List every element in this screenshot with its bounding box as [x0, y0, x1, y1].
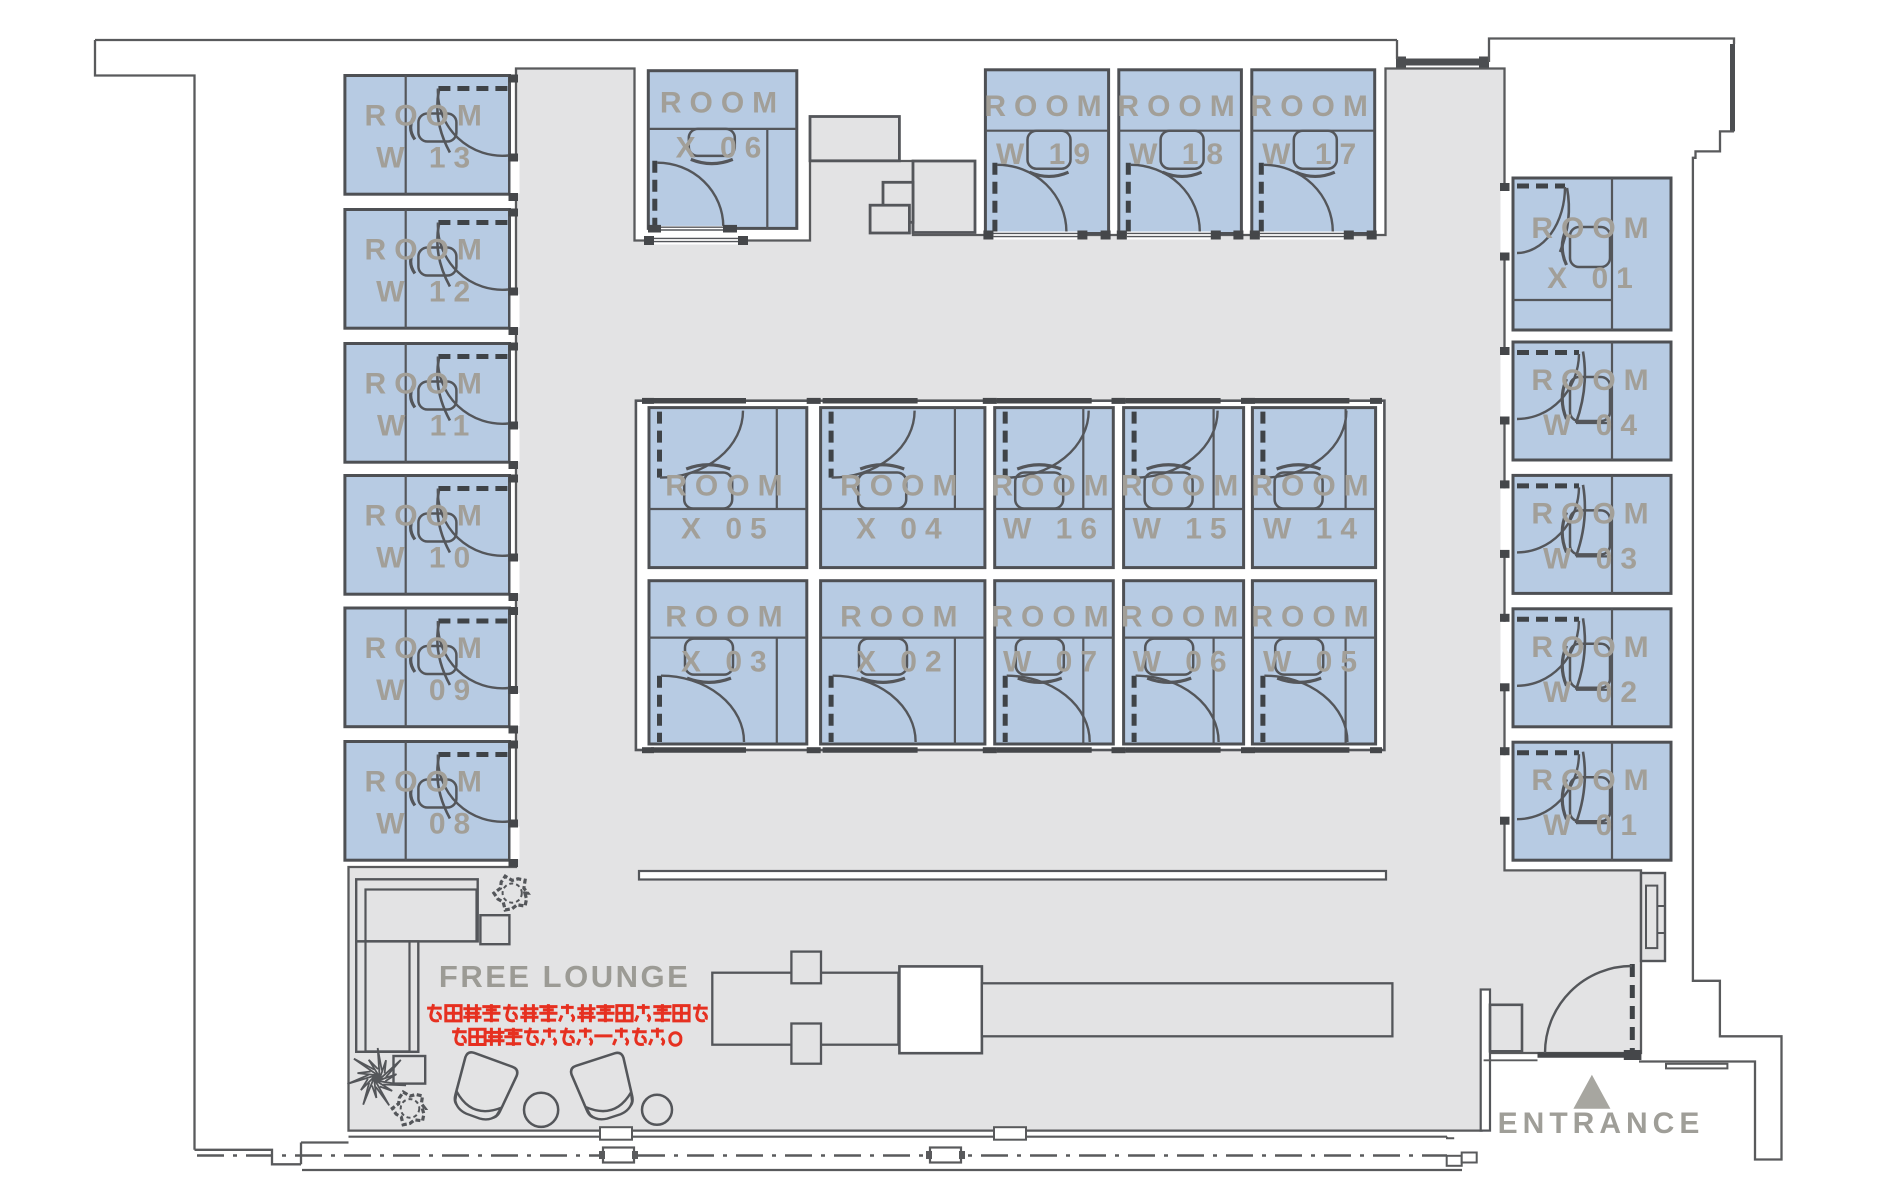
svg-text:ROOM: ROOM [1121, 601, 1246, 634]
svg-text:ROOM: ROOM [1117, 90, 1242, 123]
svg-text:ROOM: ROOM [1251, 601, 1376, 634]
svg-text:W 03: W 03 [1543, 542, 1645, 575]
svg-text:ROOM: ROOM [840, 601, 965, 634]
svg-text:ROOM: ROOM [365, 766, 490, 799]
svg-text:ROOM: ROOM [991, 601, 1116, 634]
svg-text:ENTRANCE: ENTRANCE [1498, 1107, 1705, 1140]
svg-text:ROOM: ROOM [1251, 90, 1376, 123]
svg-text:X 03: X 03 [681, 646, 775, 679]
svg-text:W 05: W 05 [1263, 646, 1365, 679]
svg-text:W 14: W 14 [1263, 513, 1365, 546]
svg-text:ROOM: ROOM [1531, 631, 1656, 664]
svg-text:W 04: W 04 [1543, 409, 1645, 442]
svg-text:W 18: W 18 [1129, 138, 1231, 171]
svg-text:W 19: W 19 [996, 138, 1098, 171]
svg-text:X 05: X 05 [681, 513, 775, 546]
svg-text:ROOM: ROOM [1531, 364, 1656, 397]
svg-text:W 17: W 17 [1262, 138, 1364, 171]
svg-text:W 02: W 02 [1543, 676, 1645, 709]
svg-text:ROOM: ROOM [665, 470, 790, 503]
svg-text:FREE LOUNGE: FREE LOUNGE [439, 959, 690, 994]
svg-text:W 13: W 13 [376, 142, 478, 175]
svg-text:ROOM: ROOM [1531, 212, 1656, 245]
svg-text:W 10: W 10 [376, 542, 478, 575]
svg-text:W 15: W 15 [1133, 513, 1235, 546]
svg-text:W 06: W 06 [1133, 646, 1235, 679]
svg-text:ROOM: ROOM [365, 368, 490, 401]
svg-text:ROOM: ROOM [991, 470, 1116, 503]
svg-text:W 16: W 16 [1003, 513, 1105, 546]
svg-text:ROOM: ROOM [1121, 470, 1246, 503]
svg-text:ROOM: ROOM [365, 500, 490, 533]
svg-text:ROOM: ROOM [665, 601, 790, 634]
svg-text:W 11: W 11 [377, 410, 477, 443]
svg-text:W 01: W 01 [1543, 809, 1645, 842]
svg-text:ROOM: ROOM [984, 90, 1109, 123]
svg-text:W 08: W 08 [376, 808, 478, 841]
svg-text:ROOM: ROOM [840, 470, 965, 503]
svg-text:ROOM: ROOM [1531, 497, 1656, 530]
svg-text:W 07: W 07 [1003, 646, 1105, 679]
svg-text:ROOM: ROOM [660, 87, 785, 120]
svg-text:W 09: W 09 [376, 674, 478, 707]
svg-text:X 04: X 04 [856, 513, 950, 546]
svg-text:X 06: X 06 [676, 132, 770, 165]
svg-text:ROOM: ROOM [365, 100, 490, 133]
svg-text:X 01: X 01 [1547, 262, 1641, 295]
svg-text:W 12: W 12 [376, 276, 478, 309]
svg-text:ROOM: ROOM [1251, 470, 1376, 503]
svg-text:ROOM: ROOM [365, 234, 490, 267]
svg-text:X 02: X 02 [856, 646, 950, 679]
svg-text:ROOM: ROOM [1531, 764, 1656, 797]
svg-text:ROOM: ROOM [365, 632, 490, 665]
